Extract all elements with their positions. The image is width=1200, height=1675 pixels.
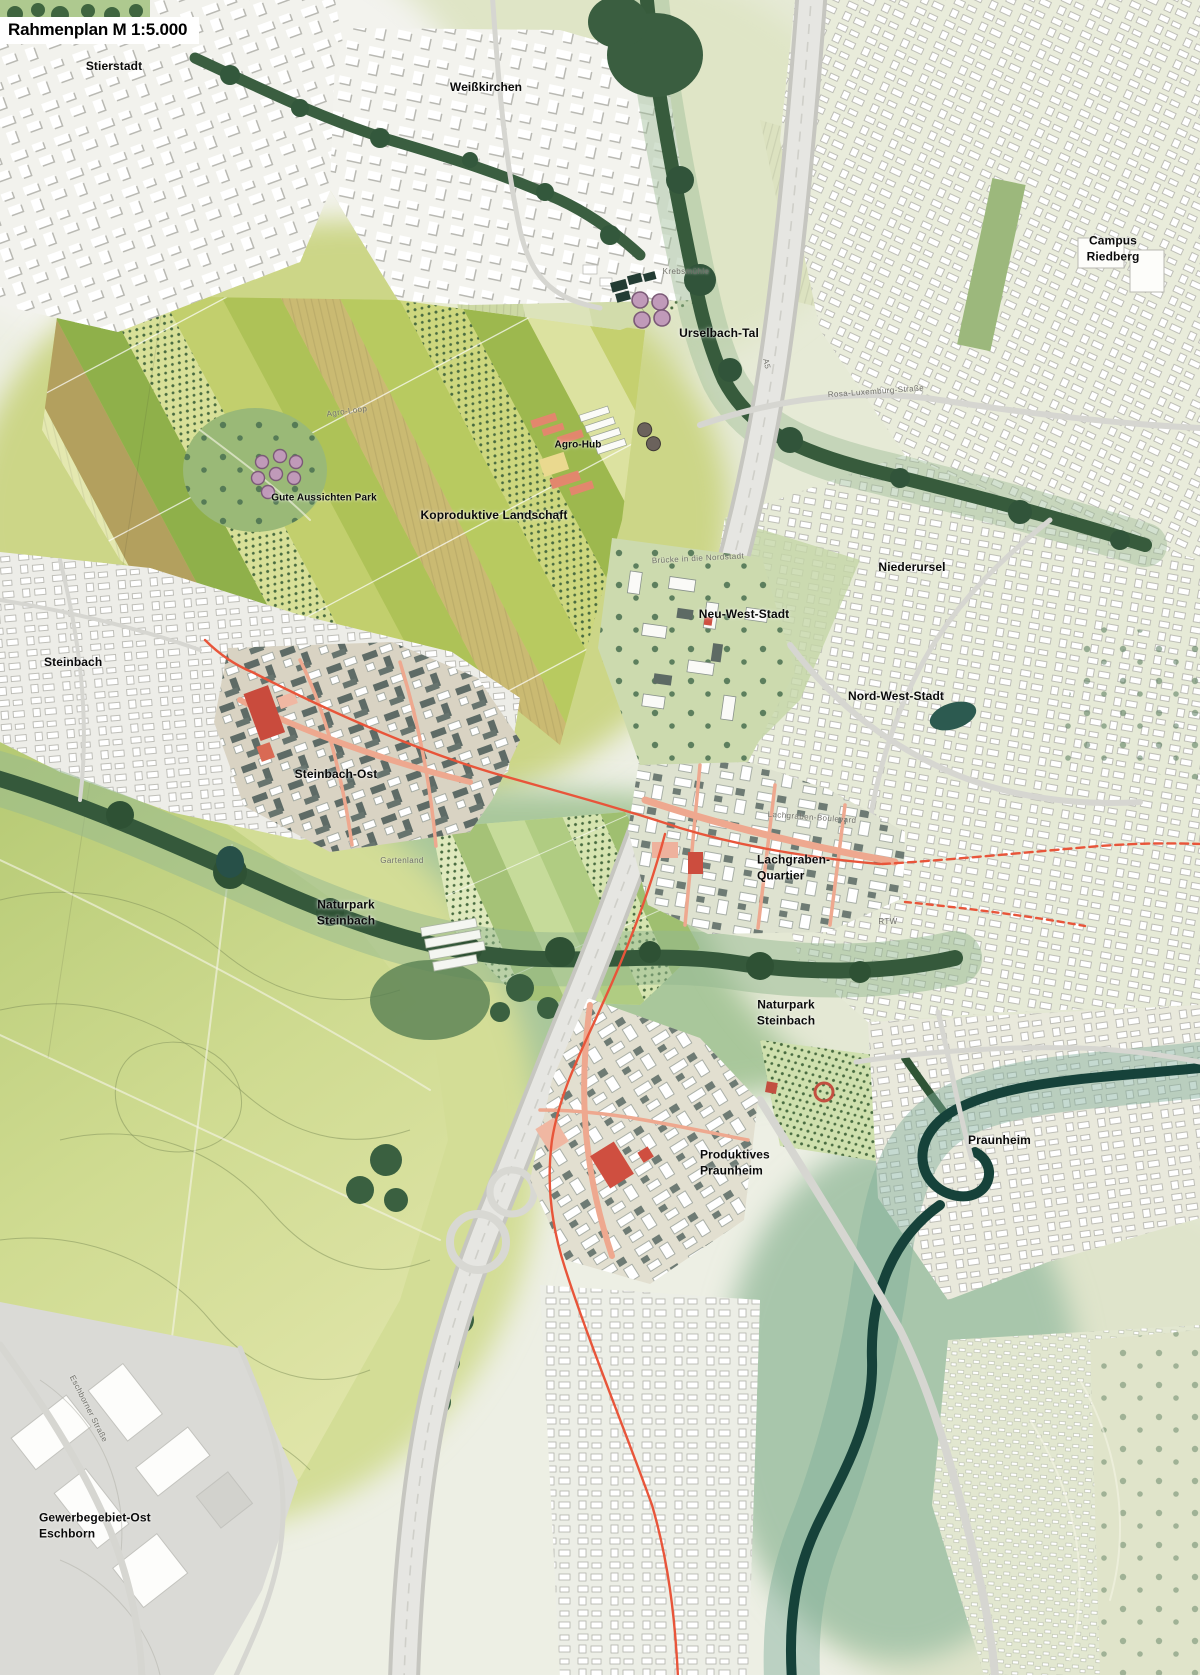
rahmenplan-map: StierstadtWeißkirchenCampus RiedbergUrse… <box>0 0 1200 1675</box>
red-landmark <box>765 1081 778 1094</box>
plan-title: Rahmenplan M 1:5.000 <box>0 17 199 44</box>
map-canvas <box>0 0 1200 1675</box>
